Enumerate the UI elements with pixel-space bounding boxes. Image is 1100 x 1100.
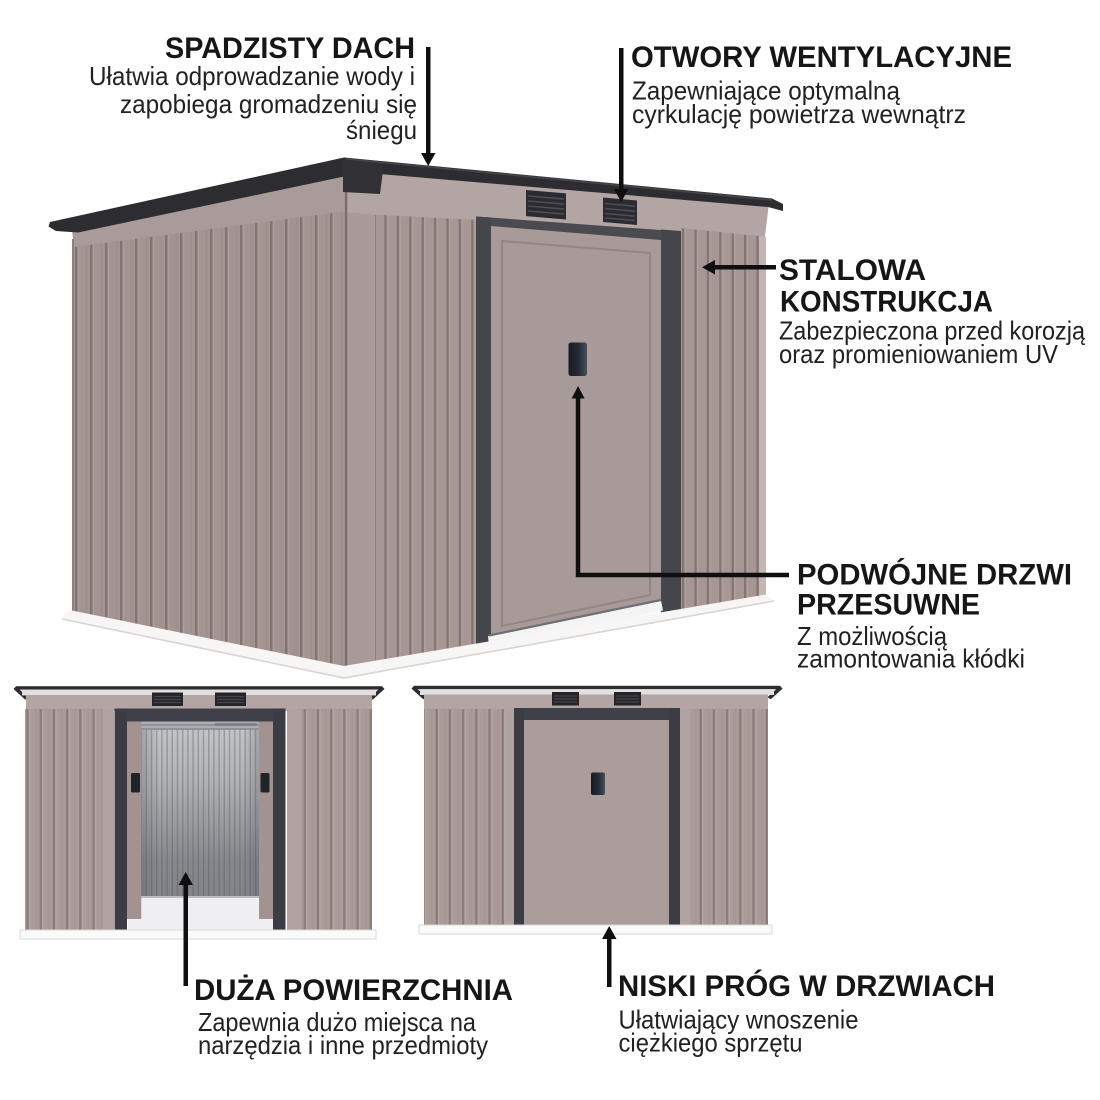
svg-text:ciężkiego sprzętu: ciężkiego sprzętu [619, 1028, 803, 1058]
svg-text:oraz promieniowaniem UV: oraz promieniowaniem UV [779, 339, 1059, 369]
svg-text:śniegu: śniegu [346, 115, 417, 145]
svg-text:NISKI PRÓG W DRZWIACH: NISKI PRÓG W DRZWIACH [618, 969, 995, 1003]
svg-text:DUŻA POWIERZCHNIA: DUŻA POWIERZCHNIA [194, 974, 513, 1007]
svg-text:PRZESUWNE: PRZESUWNE [797, 589, 980, 622]
svg-text:Ułatwia odprowadzanie wody i: Ułatwia odprowadzanie wody i [89, 61, 415, 91]
svg-text:cyrkulację powietrza wewnątrz: cyrkulację powietrza wewnątrz [632, 99, 966, 129]
svg-text:KONSTRUKCJA: KONSTRUKCJA [780, 286, 993, 319]
svg-text:OTWORY WENTYLACYJNE: OTWORY WENTYLACYJNE [631, 41, 1012, 74]
svg-text:STALOWA: STALOWA [779, 254, 926, 287]
svg-text:zamontowania kłódki: zamontowania kłódki [797, 644, 1025, 674]
svg-text:PODWÓJNE DRZWI: PODWÓJNE DRZWI [797, 558, 1072, 592]
svg-text:narzędzia i inne przedmioty: narzędzia i inne przedmioty [198, 1030, 488, 1060]
